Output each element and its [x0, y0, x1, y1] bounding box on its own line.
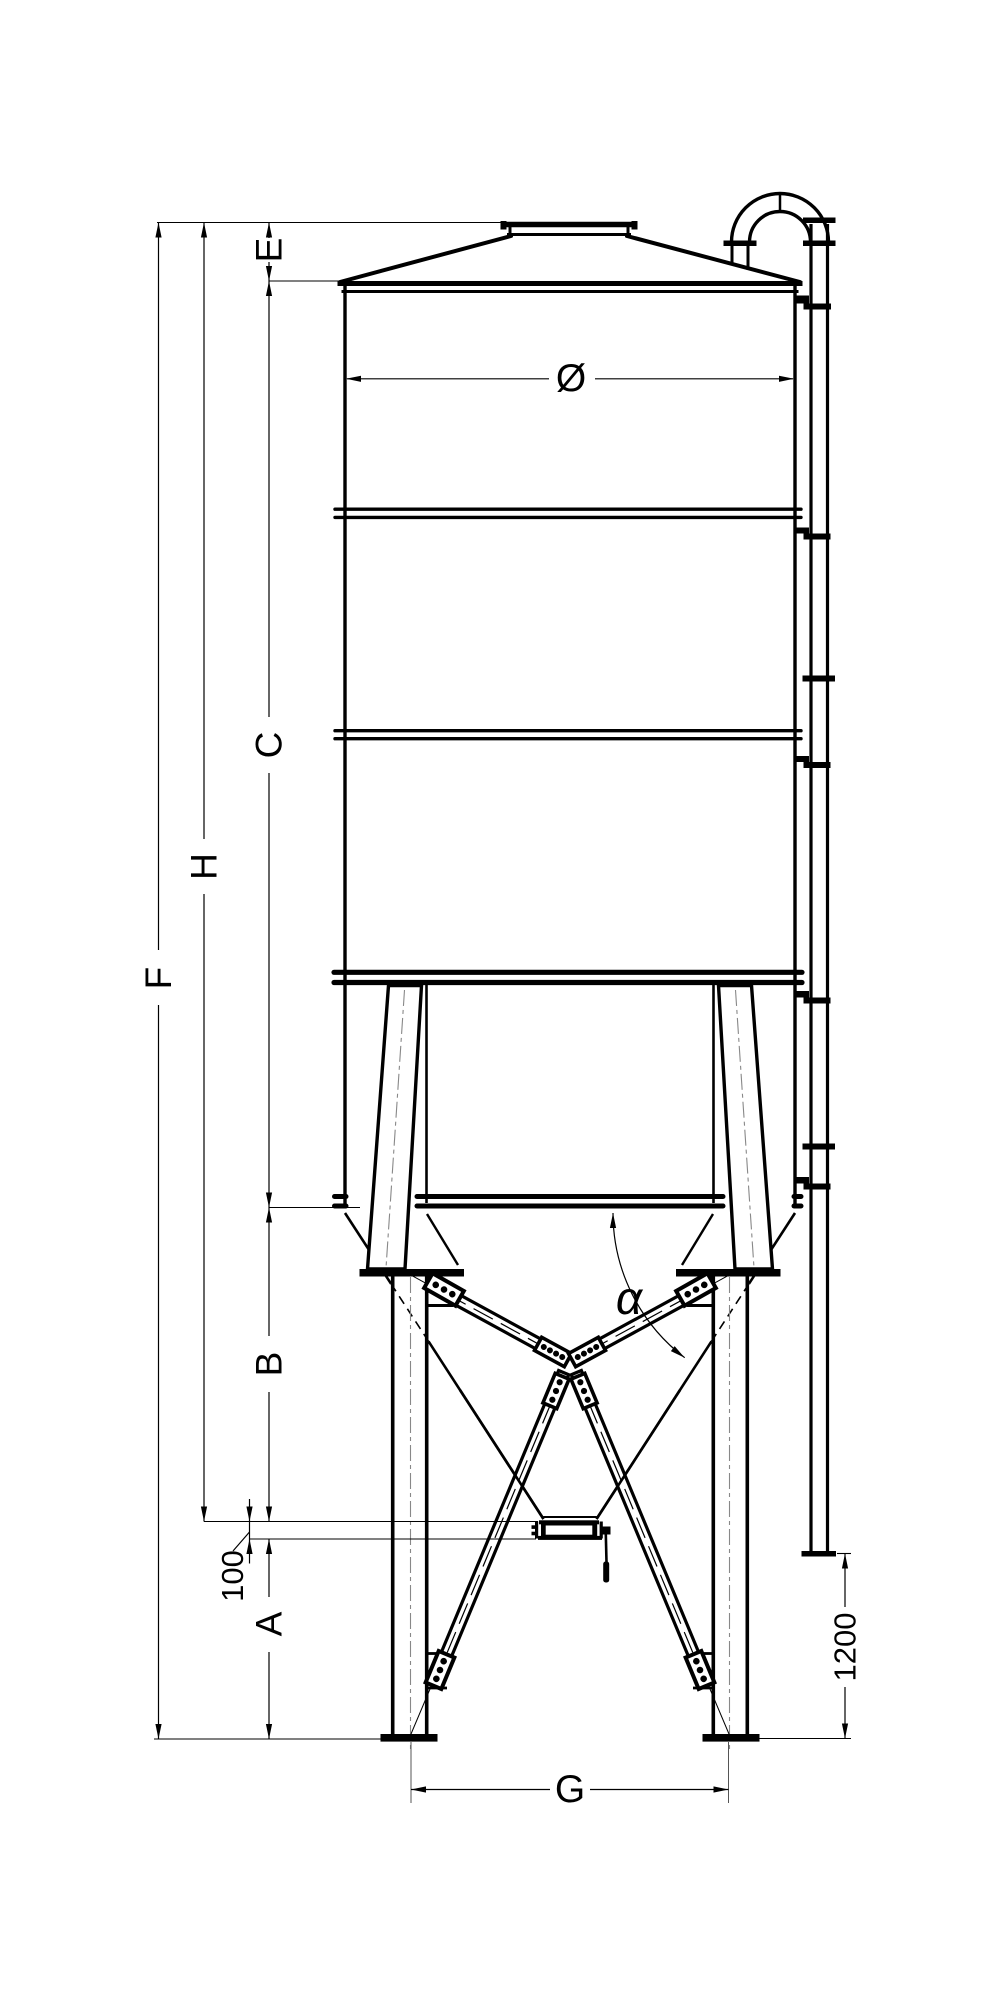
svg-text:1200: 1200 — [828, 1613, 863, 1682]
svg-text:α: α — [616, 1272, 644, 1324]
svg-text:C: C — [249, 732, 290, 759]
svg-text:G: G — [555, 1768, 585, 1811]
svg-text:100: 100 — [215, 1550, 250, 1602]
svg-text:F: F — [138, 967, 179, 990]
svg-text:A: A — [249, 1611, 290, 1636]
svg-text:Ø: Ø — [556, 357, 586, 400]
svg-text:H: H — [184, 853, 225, 880]
svg-text:B: B — [249, 1352, 290, 1377]
svg-text:E: E — [249, 238, 290, 263]
